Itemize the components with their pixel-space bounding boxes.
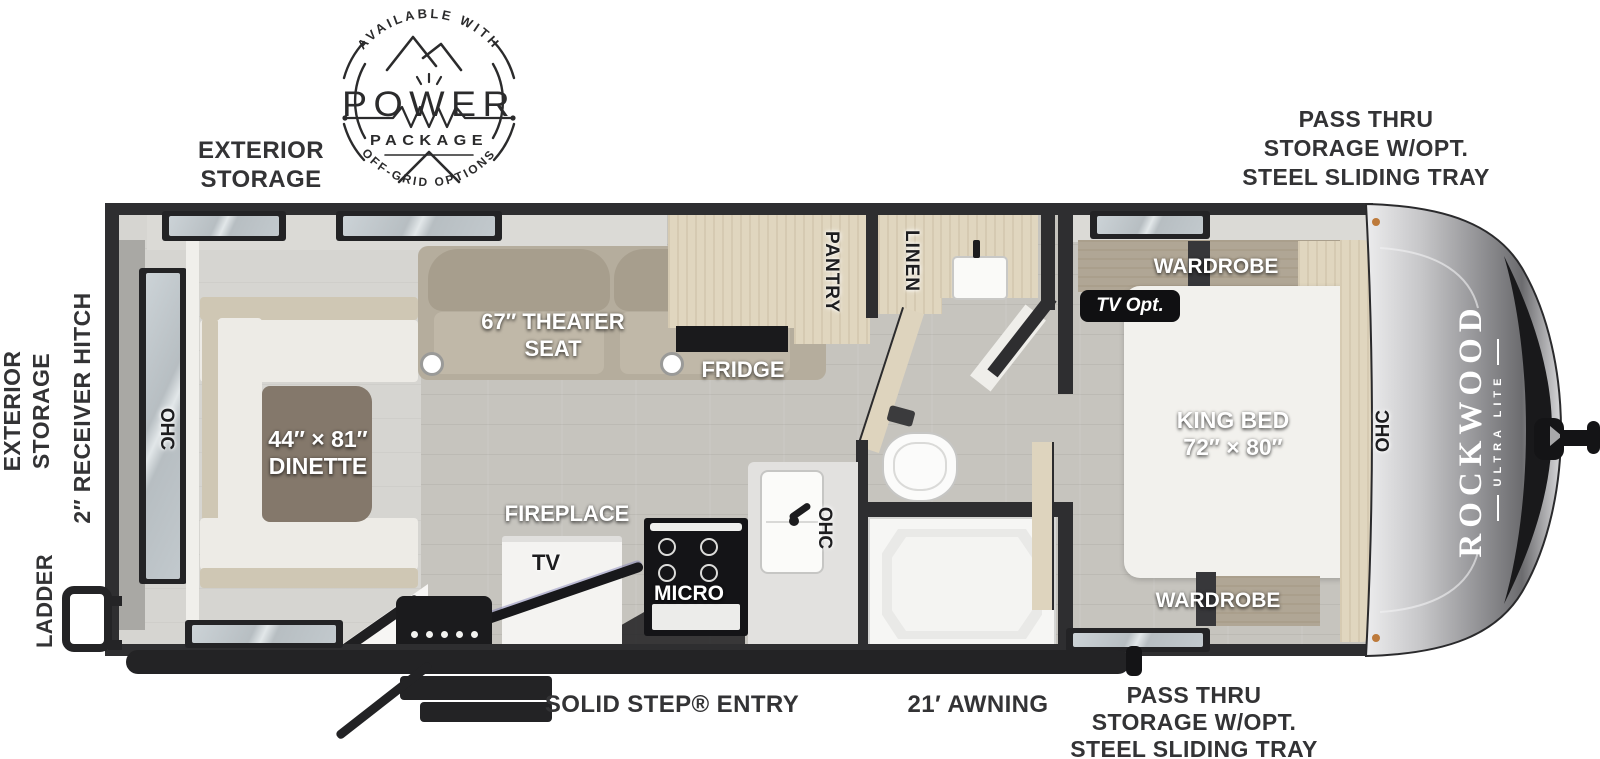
theater-seat-back-left xyxy=(428,249,610,311)
clearance-light-icon xyxy=(1372,634,1380,642)
window xyxy=(162,211,286,241)
brand-subname: ULTRA LITE xyxy=(1491,374,1505,487)
pantry-label: PANTRY xyxy=(819,227,843,317)
range xyxy=(644,518,748,636)
receiver-hitch-label: 2″ RECEIVER HITCH xyxy=(68,283,96,533)
badge-package-text: PACKAGE xyxy=(370,132,488,149)
ladder-label: LADDER xyxy=(31,551,57,651)
shower-top-wall xyxy=(864,502,1060,517)
fridge xyxy=(676,326,788,352)
king-bed-label: KING BED 72″ × 80″ xyxy=(1133,407,1333,461)
ladder-icon xyxy=(62,586,112,652)
badge-arc-top-text: AVAILABLE WITH xyxy=(354,6,504,52)
ohc-rear-label: OHC xyxy=(153,399,179,459)
dinette-backrest-bottom xyxy=(200,568,418,588)
exterior-storage-left-label: EXTERIOR STORAGE xyxy=(0,326,56,496)
toilet xyxy=(882,432,958,502)
brand-logo: ROCKWOOD ULTRA LITE xyxy=(1453,290,1515,570)
dinette-bench-bottom xyxy=(200,518,418,570)
fridge-overhead-cabinet xyxy=(668,214,794,328)
slide-wall xyxy=(186,224,199,638)
window xyxy=(336,211,502,241)
linen-label: LINEN xyxy=(899,221,923,301)
bath-faucet-icon xyxy=(973,240,980,258)
dinette-label: 44″ × 81″ DINETTE xyxy=(230,426,406,480)
shower xyxy=(868,517,1056,651)
pass-thru-top-label: PASS THRU STORAGE W/OPT. STEEL SLIDING T… xyxy=(1205,105,1527,192)
bedroom-divider-wall-top xyxy=(1058,214,1073,394)
floorplan-canvas: EXTERIOR STORAGE PASS THRU STORAGE W/OPT… xyxy=(0,0,1600,759)
power-package-badge-icon: AVAILABLE WITH POWER PACKAGE OFF-GRID OP… xyxy=(333,4,525,200)
window xyxy=(185,620,343,648)
badge-power-text: POWER xyxy=(342,85,516,124)
micro-label: MICRO xyxy=(629,580,749,607)
bedroom-door xyxy=(1032,442,1054,610)
bath-wall-upper xyxy=(1041,214,1055,310)
window xyxy=(1090,211,1210,239)
clearance-light-icon xyxy=(1372,218,1380,226)
ohc-front-label: OHC xyxy=(1372,401,1396,461)
fireplace-label: FIREPLACE xyxy=(467,500,667,527)
pantry-wall xyxy=(866,214,878,318)
wardrobe-bottom-label: WARDROBE xyxy=(1118,587,1318,614)
range-drawer xyxy=(652,604,740,630)
awning-end-cap xyxy=(1126,646,1142,676)
dinette-backrest-top xyxy=(200,297,418,320)
brand-name: ROCKWOOD xyxy=(1453,290,1489,570)
awning-bar xyxy=(126,650,1130,674)
bath-sink xyxy=(952,256,1008,300)
theater-seat-label: 67″ THEATER SEAT xyxy=(448,308,658,362)
cupholder-icon xyxy=(420,352,444,376)
tv-opt-badge: TV Opt. xyxy=(1080,290,1180,322)
pass-thru-bottom-label: PASS THRU STORAGE W/OPT. STEEL SLIDING T… xyxy=(1034,682,1354,759)
shower-pan xyxy=(882,529,1042,639)
ohc-kitchen-label: OHC xyxy=(812,498,836,558)
tv-label: TV xyxy=(516,550,576,576)
solid-step-entry-label: SOLID STEP® ENTRY xyxy=(512,690,832,719)
svg-text:AVAILABLE WITH: AVAILABLE WITH xyxy=(354,6,504,52)
fridge-label: FRIDGE xyxy=(673,356,813,383)
burner-icon xyxy=(700,538,718,556)
toilet-seat xyxy=(893,442,947,491)
burner-icon xyxy=(658,538,676,556)
wardrobe-top-label: WARDROBE xyxy=(1116,253,1316,280)
